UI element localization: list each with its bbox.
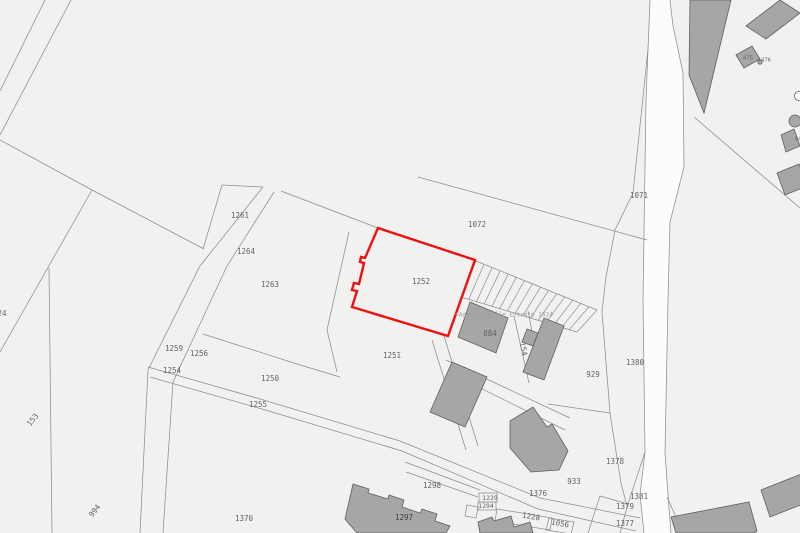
parcel-label-1229: 1229 xyxy=(482,494,498,502)
parcel-label-476: 476 xyxy=(761,58,771,64)
parcel-label-1256: 1256 xyxy=(190,349,209,358)
parcel-label-1252: 1252 xyxy=(412,277,430,286)
parcel-label-1379: 1379 xyxy=(616,502,634,511)
parcel-label-1294: 1294 xyxy=(478,502,494,510)
parcel-label-1071: 1071 xyxy=(630,191,648,200)
parcel-label-1259: 1259 xyxy=(165,344,183,353)
parcel-label-1377: 1377 xyxy=(616,519,634,528)
parcel-label-1298: 1298 xyxy=(423,481,442,490)
building-circle xyxy=(789,115,800,127)
parcel-label-1263: 1263 xyxy=(261,280,279,289)
map-canvas[interactable]: 1261126412631259125612541250125515399424… xyxy=(0,0,800,533)
parcel-label-1380: 1380 xyxy=(626,358,645,367)
parcel-label-1250: 1250 xyxy=(261,374,280,383)
parcel-label-1251: 1251 xyxy=(383,351,401,360)
copyright-watermark: ©Agenzia delle Entrate 2024 xyxy=(455,312,553,319)
parcel-label-94: 94 xyxy=(795,137,800,143)
parcel-label-929: 929 xyxy=(586,370,600,379)
circular-feature-outline xyxy=(795,92,800,101)
parcel-label-24: 24 xyxy=(0,309,7,318)
parcel-label-1264: 1264 xyxy=(237,247,256,256)
parcel-label-475: 475 xyxy=(743,56,753,62)
parcel-label-1376: 1376 xyxy=(529,489,548,498)
parcel-label-1254: 1254 xyxy=(163,366,182,375)
parcel-label-1370: 1370 xyxy=(235,514,254,523)
cadastral-map-viewport[interactable]: 1261126412631259125612541250125515399424… xyxy=(0,0,800,533)
parcel-label-884: 884 xyxy=(483,329,497,338)
parcel-label-1072: 1072 xyxy=(468,220,486,229)
parcel-label-1255: 1255 xyxy=(249,400,267,409)
parcel-label-933: 933 xyxy=(567,477,581,486)
parcel-label-1261: 1261 xyxy=(231,211,249,220)
parcel-label-1297: 1297 xyxy=(395,513,413,522)
parcel-label-1378: 1378 xyxy=(606,457,625,466)
parcel-label-1381: 1381 xyxy=(630,492,648,501)
